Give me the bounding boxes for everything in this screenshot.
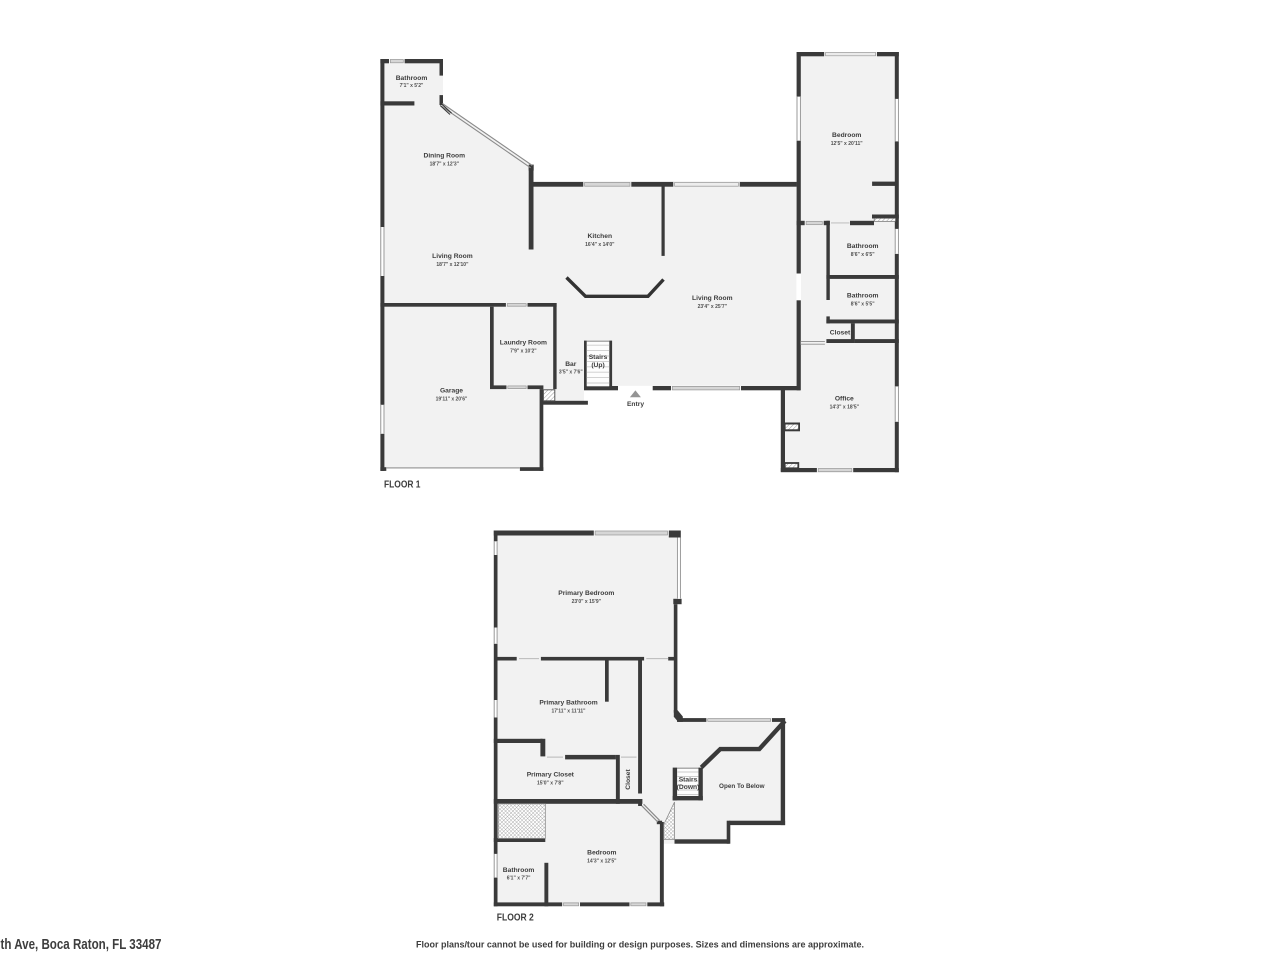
- svg-text:Closet: Closet: [830, 330, 851, 337]
- svg-text:Bar: Bar: [565, 361, 577, 368]
- svg-text:Bedroom: Bedroom: [587, 850, 616, 857]
- svg-text:Floor plans/tour cannot be use: Floor plans/tour cannot be used for buil…: [416, 940, 864, 950]
- svg-text:(Down): (Down): [677, 784, 700, 791]
- svg-text:19'11" x 20'6": 19'11" x 20'6": [436, 397, 468, 403]
- svg-text:Living Room: Living Room: [692, 295, 733, 302]
- svg-text:Kitchen: Kitchen: [588, 233, 613, 240]
- svg-text:Open To Below: Open To Below: [719, 783, 765, 790]
- svg-text:12'5" x 20'11": 12'5" x 20'11": [831, 141, 863, 147]
- svg-text:16'4" x 14'0": 16'4" x 14'0": [585, 242, 615, 248]
- svg-text:Bathroom: Bathroom: [396, 75, 428, 82]
- svg-text:14'3" x 12'5": 14'3" x 12'5": [587, 859, 617, 865]
- svg-text:Primary Bedroom: Primary Bedroom: [558, 590, 614, 597]
- svg-text:Laundry Room: Laundry Room: [500, 340, 547, 347]
- svg-text:6'1" x 7'7": 6'1" x 7'7": [507, 876, 531, 882]
- svg-text:18'7" x 12'3": 18'7" x 12'3": [430, 162, 460, 168]
- svg-text:Dining Room: Dining Room: [423, 153, 465, 160]
- svg-text:FLOOR 1: FLOOR 1: [384, 479, 421, 491]
- svg-text:Bathroom: Bathroom: [847, 293, 879, 300]
- svg-text:(Up): (Up): [591, 362, 604, 369]
- svg-text:th Ave, Boca Raton, FL 33487: th Ave, Boca Raton, FL 33487: [1, 936, 162, 953]
- svg-text:Bedroom: Bedroom: [832, 132, 861, 139]
- svg-text:Stairs: Stairs: [679, 777, 698, 784]
- svg-text:Stairs: Stairs: [589, 354, 608, 361]
- svg-text:FLOOR 2: FLOOR 2: [497, 912, 534, 924]
- svg-text:Bathroom: Bathroom: [847, 243, 879, 250]
- svg-text:23'4" x 25'7": 23'4" x 25'7": [698, 304, 728, 310]
- svg-text:Office: Office: [835, 396, 854, 403]
- svg-text:8'6" x 5'5": 8'6" x 5'5": [851, 302, 875, 308]
- svg-text:Living Room: Living Room: [432, 253, 473, 260]
- svg-text:23'0" x 15'9": 23'0" x 15'9": [572, 599, 602, 605]
- svg-text:Primary Closet: Primary Closet: [527, 772, 575, 779]
- svg-text:7'1" x 5'2": 7'1" x 5'2": [400, 83, 424, 89]
- svg-text:Bathroom: Bathroom: [503, 867, 535, 874]
- svg-text:Entry: Entry: [627, 401, 644, 408]
- svg-text:18'7" x 12'10": 18'7" x 12'10": [436, 262, 469, 268]
- svg-text:Garage: Garage: [440, 388, 463, 395]
- svg-text:Primary Bathroom: Primary Bathroom: [539, 700, 597, 707]
- svg-text:7'9" x 10'2": 7'9" x 10'2": [510, 349, 537, 355]
- svg-text:8'6" x 6'5": 8'6" x 6'5": [851, 252, 875, 258]
- svg-text:17'11" x 11'11": 17'11" x 11'11": [551, 709, 586, 715]
- svg-text:15'0" x 7'8": 15'0" x 7'8": [537, 781, 564, 787]
- svg-text:14'3" x 18'5": 14'3" x 18'5": [830, 405, 860, 411]
- svg-text:Closet: Closet: [625, 769, 632, 790]
- svg-text:3'5" x 7'6": 3'5" x 7'6": [559, 370, 583, 376]
